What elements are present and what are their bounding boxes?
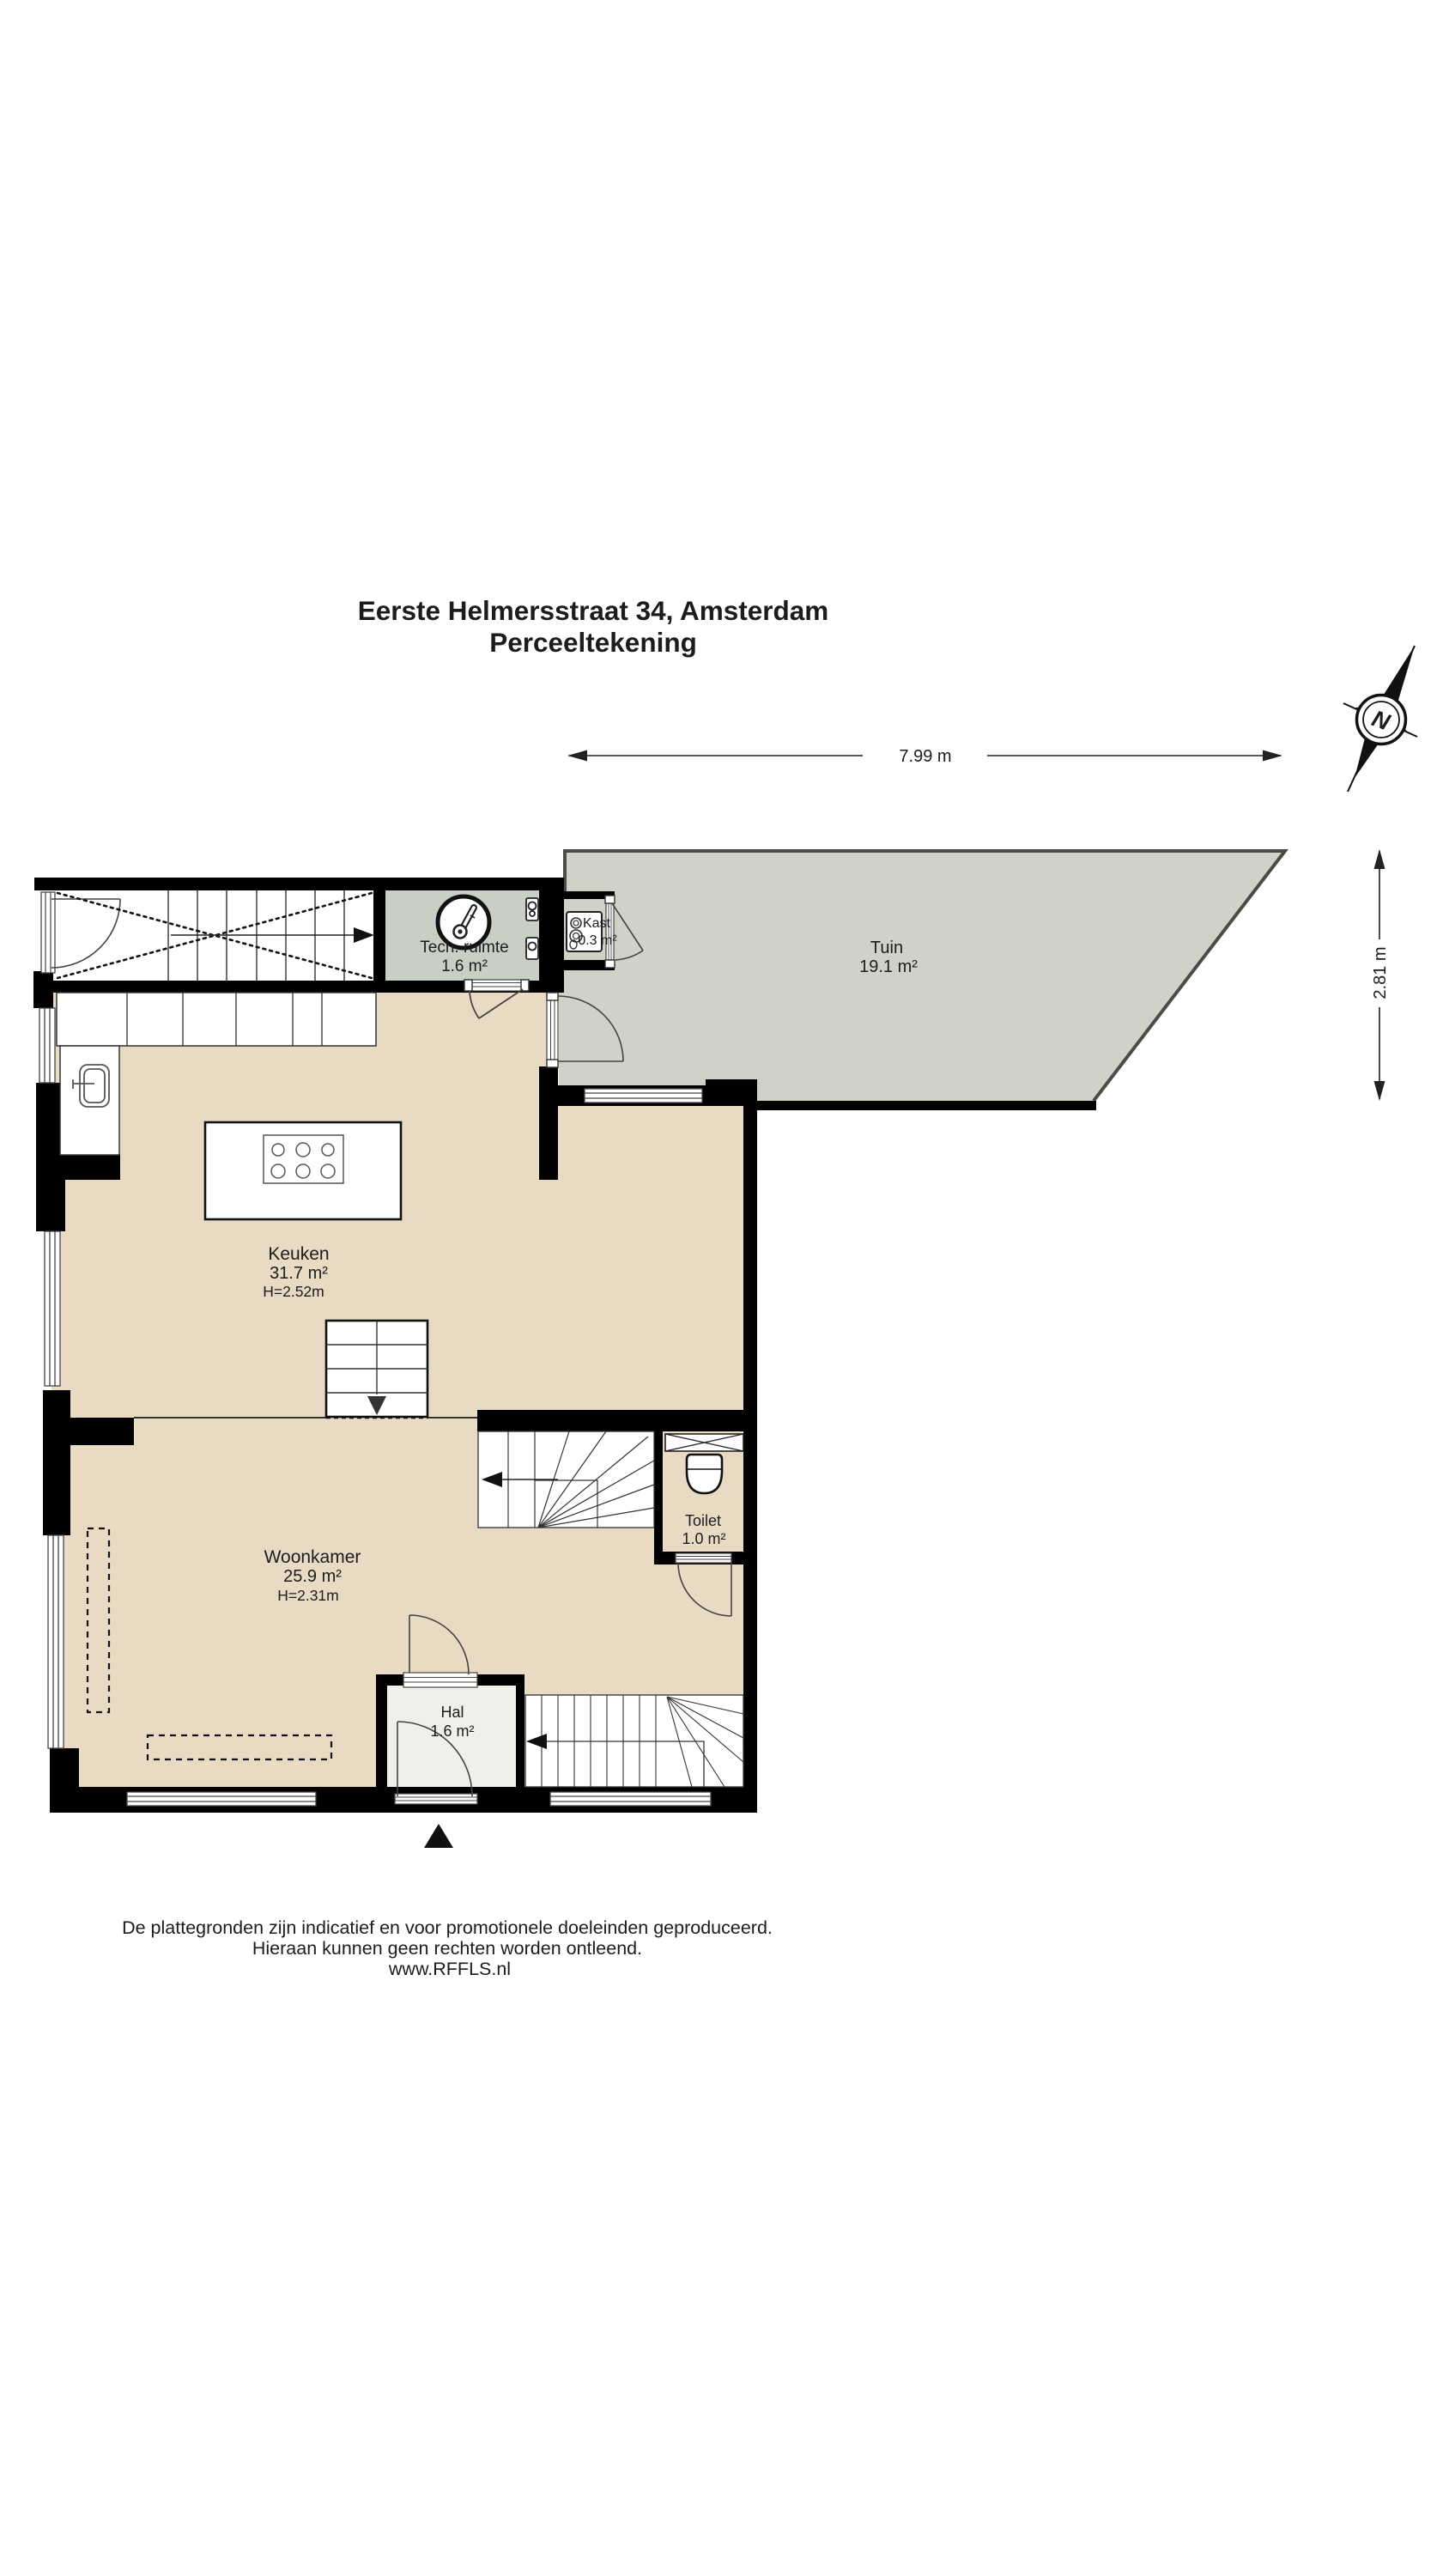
- svg-text:0.3 m²: 0.3 m²: [578, 933, 617, 948]
- svg-text:Woonkamer: Woonkamer: [264, 1547, 361, 1567]
- svg-text:Tech. ruimte: Tech. ruimte: [420, 939, 508, 957]
- svg-text:2.81 m: 2.81 m: [1371, 946, 1390, 999]
- svg-text:7.99 m: 7.99 m: [899, 747, 951, 766]
- svg-text:Tuin: Tuin: [870, 939, 903, 957]
- svg-text:25.9 m²: 25.9 m²: [283, 1567, 342, 1586]
- svg-text:Perceeltekening: Perceeltekening: [489, 627, 697, 658]
- svg-text:Eerste Helmersstraat 34, Amste: Eerste Helmersstraat 34, Amsterdam: [358, 595, 829, 626]
- svg-text:Keuken: Keuken: [268, 1244, 329, 1264]
- svg-text:1.6 m²: 1.6 m²: [430, 1722, 474, 1740]
- svg-text:31.7 m²: 31.7 m²: [270, 1264, 328, 1283]
- svg-text:Kast: Kast: [583, 916, 611, 931]
- svg-text:H=2.31m: H=2.31m: [277, 1587, 339, 1604]
- svg-text:1.0 m²: 1.0 m²: [682, 1530, 725, 1547]
- svg-text:1.6 m²: 1.6 m²: [441, 957, 488, 975]
- svg-text:H=2.52m: H=2.52m: [263, 1283, 324, 1300]
- svg-text:www.RFFLS.nl: www.RFFLS.nl: [388, 1959, 511, 1979]
- svg-text:De plattegronden zijn indicati: De plattegronden zijn indicatief en voor…: [122, 1917, 773, 1938]
- svg-text:Hal: Hal: [440, 1704, 464, 1721]
- svg-text:Toilet: Toilet: [685, 1512, 721, 1529]
- svg-text:19.1 m²: 19.1 m²: [859, 957, 918, 976]
- svg-text:Hieraan kunnen geen rechten wo: Hieraan kunnen geen rechten worden ontle…: [252, 1938, 642, 1959]
